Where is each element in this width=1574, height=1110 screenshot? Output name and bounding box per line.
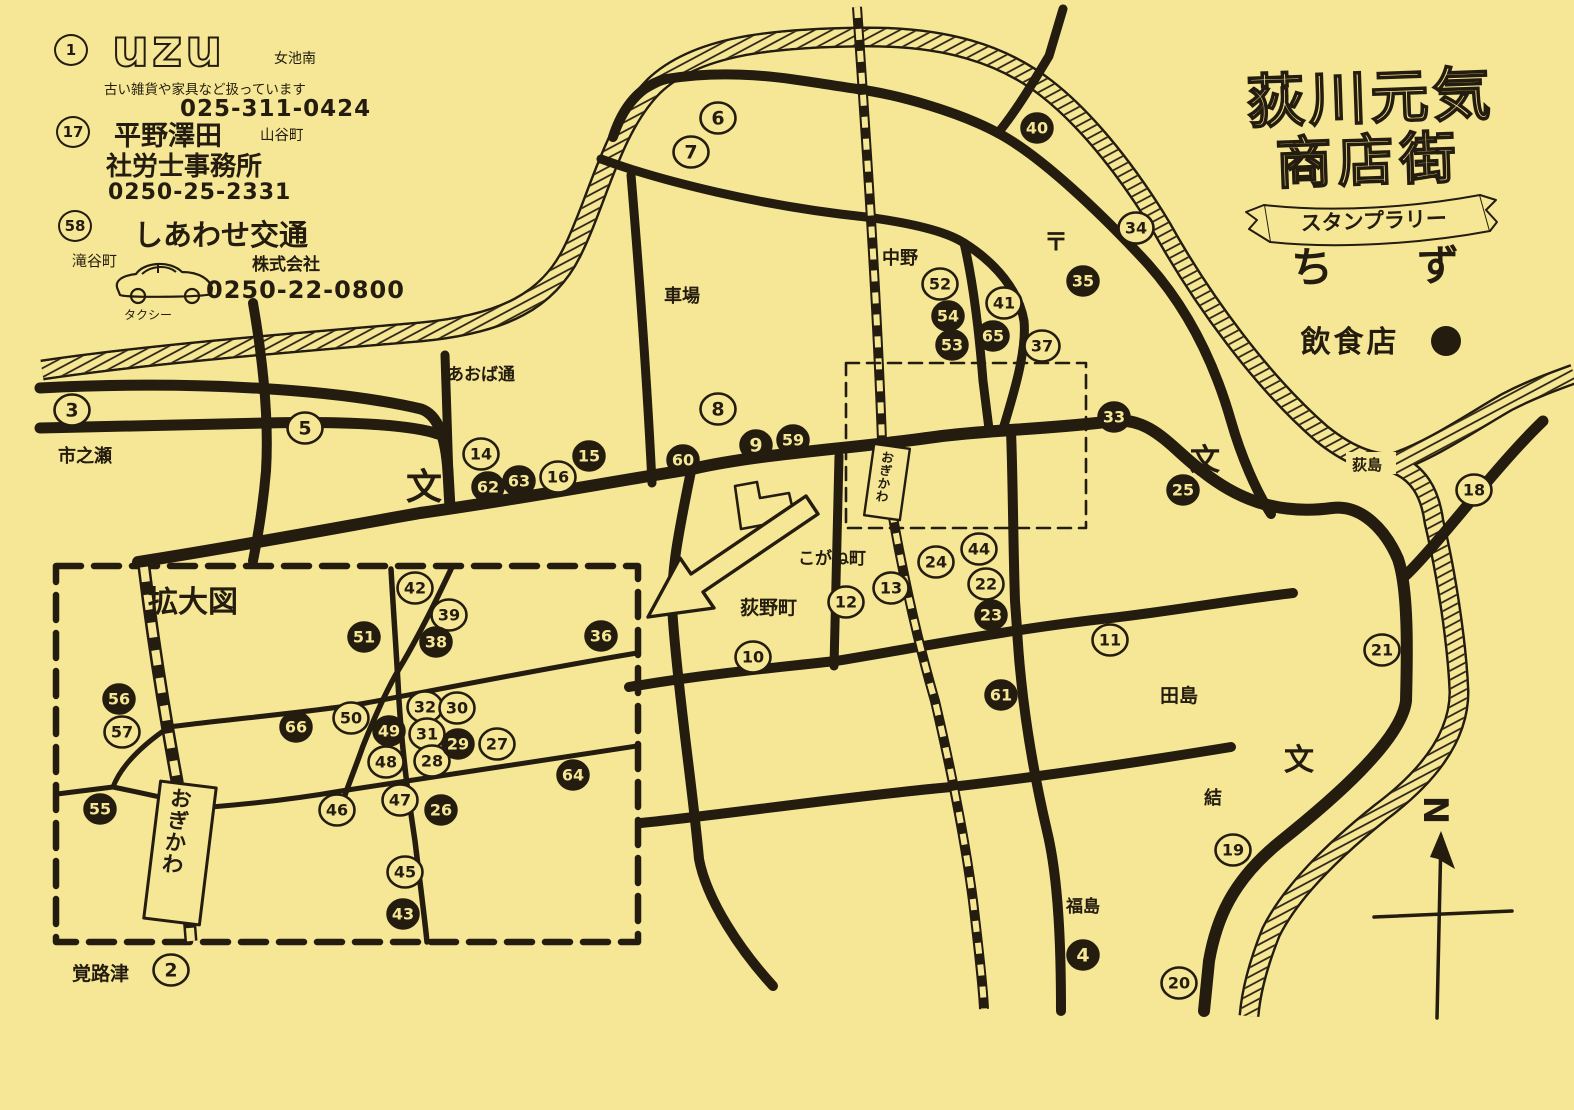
svg-text:39: 39 [438, 606, 460, 625]
ad-uzu-desc: 古い雑貨や家具など扱っています [104, 78, 306, 98]
ad-hirano-marker: 17 [56, 116, 90, 148]
ad-hirano-sawada: 17 平野澤田 山谷町 社労士事務所 0250-25-2331 [42, 110, 382, 210]
ad-taxi-phone: 0250-22-0800 [206, 276, 405, 304]
svg-text:30: 30 [446, 699, 468, 718]
svg-text:53: 53 [941, 336, 963, 355]
svg-text:20: 20 [1168, 974, 1190, 993]
svg-text:50: 50 [340, 709, 362, 728]
map-marker-46: 46 [320, 795, 355, 826]
svg-text:55: 55 [89, 800, 111, 819]
map-marker-27: 27 [480, 729, 515, 760]
map-marker-62: 62 [472, 472, 504, 502]
ribbon-label: スタンプラリー [1300, 206, 1447, 235]
map-marker-39: 39 [432, 600, 467, 631]
ad-hirano-area: 山谷町 [260, 124, 304, 145]
map-marker-33: 33 [1098, 402, 1130, 432]
svg-text:57: 57 [111, 723, 133, 742]
map-marker-50: 50 [334, 703, 369, 734]
svg-text:3: 3 [65, 400, 78, 422]
svg-text:44: 44 [968, 540, 990, 559]
svg-text:21: 21 [1371, 641, 1393, 660]
ad-taxi-company: 株式会社 [252, 250, 320, 275]
svg-text:7: 7 [684, 142, 697, 164]
svg-text:13: 13 [880, 579, 902, 598]
map-marker-14: 14 [464, 439, 499, 470]
svg-text:31: 31 [416, 725, 438, 744]
map-marker-2: 2 [154, 955, 189, 986]
map-marker-45: 45 [388, 857, 423, 888]
label-田島: 田島 [1160, 684, 1198, 707]
inset-border [56, 566, 638, 942]
svg-text:54: 54 [937, 307, 959, 326]
svg-text:6: 6 [711, 108, 724, 130]
map-marker-54: 54 [932, 301, 964, 331]
label-覚路津: 覚路津 [72, 962, 129, 985]
stamp-rally-map: N 荻川元気 商店街 スタンプラリー ち ず 飲食店 市之瀬あおば通車場中野〒こ… [0, 0, 1574, 1110]
svg-text:uzu: uzu [112, 20, 225, 76]
ad-taxi-vehicle: タクシー [124, 306, 172, 323]
map-marker-16: 16 [541, 462, 576, 493]
svg-text:61: 61 [990, 686, 1012, 705]
map-marker-7: 7 [674, 137, 709, 168]
ad-uzu-area: 女池南 [274, 48, 316, 68]
map-marker-65: 65 [977, 321, 1009, 351]
map-marker-4: 4 [1067, 940, 1099, 970]
svg-text:2: 2 [164, 960, 177, 982]
svg-text:63: 63 [508, 472, 530, 491]
map-marker-30: 30 [440, 693, 475, 724]
svg-text:51: 51 [353, 628, 375, 647]
map-marker-63: 63 [503, 466, 535, 496]
label-あおば通: あおば通 [447, 365, 515, 385]
ad-taxi-marker: 58 [58, 210, 92, 242]
label-文: 文 [1284, 743, 1314, 778]
label-拡大図: 拡大図 [148, 585, 238, 620]
map-marker-22: 22 [969, 569, 1004, 600]
ad-uzu: 1 uzu 女池南 古い雑貨や家具など扱っています 025-311-0424 [42, 24, 382, 114]
label-荻島: 荻島 [1352, 456, 1382, 474]
advertisements: 1 uzu 女池南 古い雑貨や家具など扱っています 025-311-0424 1… [0, 0, 420, 330]
map-marker-10: 10 [736, 642, 771, 673]
svg-text:62: 62 [477, 478, 499, 497]
label-中野: 中野 [882, 247, 918, 269]
label-文: 文 [1190, 443, 1220, 478]
svg-text:46: 46 [326, 801, 348, 820]
label-結: 結 [1204, 787, 1222, 809]
map-marker-61: 61 [985, 680, 1017, 710]
svg-text:25: 25 [1172, 481, 1194, 500]
compass-north: N [1374, 796, 1512, 1018]
svg-text:19: 19 [1222, 841, 1244, 860]
compass-n-label: N [1415, 796, 1455, 824]
svg-text:29: 29 [447, 735, 469, 754]
svg-text:24: 24 [925, 553, 947, 572]
map-marker-51: 51 [348, 622, 380, 652]
label-荻野町: 荻野町 [740, 596, 797, 619]
svg-text:26: 26 [430, 801, 452, 820]
inset-roads [57, 567, 637, 942]
svg-text:23: 23 [980, 606, 1002, 625]
ad-hirano-phone: 0250-25-2331 [108, 180, 291, 205]
svg-text:4: 4 [1076, 945, 1089, 967]
svg-text:47: 47 [389, 791, 411, 810]
map-marker-5: 5 [288, 413, 323, 444]
svg-text:36: 36 [590, 627, 612, 646]
map-marker-42: 42 [398, 573, 433, 604]
title-ribbon: スタンプラリー [1246, 195, 1497, 245]
svg-text:65: 65 [982, 327, 1004, 346]
map-marker-48: 48 [369, 747, 404, 778]
svg-text:64: 64 [562, 766, 584, 785]
map-title: 荻川元気 商店街 [1245, 60, 1497, 199]
svg-text:12: 12 [835, 593, 857, 612]
svg-text:8: 8 [711, 399, 724, 421]
map-marker-64: 64 [557, 760, 589, 790]
svg-text:14: 14 [470, 445, 492, 464]
title-chi: ち [1291, 243, 1333, 292]
svg-text:56: 56 [108, 690, 130, 709]
svg-text:38: 38 [425, 633, 447, 652]
svg-text:52: 52 [929, 275, 951, 294]
svg-text:42: 42 [404, 579, 426, 598]
map-marker-12: 12 [829, 587, 864, 618]
map-marker-43: 43 [387, 899, 419, 929]
map-marker-38: 38 [420, 627, 452, 657]
map-marker-52: 52 [923, 269, 958, 300]
svg-text:16: 16 [547, 468, 569, 487]
map-marker-3: 3 [55, 395, 90, 426]
map-marker-11: 11 [1093, 625, 1128, 656]
title-line1: 荻川元気 [1245, 60, 1495, 137]
map-marker-37: 37 [1025, 331, 1060, 362]
svg-text:18: 18 [1463, 481, 1485, 500]
ad-taxi-name: しあわせ交通 [134, 212, 308, 254]
map-marker-60: 60 [667, 445, 699, 475]
svg-text:40: 40 [1026, 119, 1048, 138]
map-marker-34: 34 [1119, 213, 1154, 244]
title-line2: 商店街 [1275, 126, 1463, 197]
legend-restaurant: 飲食店 [1301, 325, 1462, 360]
inset-enlarged-map [56, 566, 638, 942]
map-marker-9: 9 [740, 430, 772, 460]
svg-text:49: 49 [378, 722, 400, 741]
svg-text:34: 34 [1125, 219, 1147, 238]
map-marker-35: 35 [1067, 266, 1099, 296]
map-marker-25: 25 [1167, 475, 1199, 505]
map-marker-56: 56 [103, 684, 135, 714]
map-marker-6: 6 [701, 103, 736, 134]
map-marker-24: 24 [919, 547, 954, 578]
map-marker-19: 19 [1216, 835, 1251, 866]
restaurant-dot-icon [1431, 326, 1461, 356]
label-〒: 〒 [1044, 228, 1068, 256]
svg-text:9: 9 [749, 435, 762, 457]
map-marker-44: 44 [962, 534, 997, 565]
svg-text:48: 48 [375, 753, 397, 772]
map-marker-66: 66 [280, 712, 312, 742]
map-marker-40: 40 [1021, 113, 1053, 143]
map-marker-49: 49 [373, 716, 405, 746]
map-marker-20: 20 [1162, 968, 1197, 999]
svg-text:32: 32 [414, 698, 436, 717]
map-marker-41: 41 [987, 288, 1022, 319]
svg-text:35: 35 [1072, 272, 1094, 291]
svg-text:60: 60 [672, 451, 694, 470]
svg-text:43: 43 [392, 905, 414, 924]
uzu-logo: uzu [108, 20, 268, 76]
map-marker-36: 36 [585, 621, 617, 651]
map-marker-53: 53 [936, 330, 968, 360]
svg-text:33: 33 [1103, 408, 1125, 427]
label-車場: 車場 [664, 285, 700, 307]
svg-text:5: 5 [298, 418, 311, 440]
svg-text:41: 41 [993, 294, 1015, 313]
svg-text:59: 59 [782, 431, 804, 450]
map-marker-57: 57 [105, 717, 140, 748]
label-市之瀬: 市之瀬 [58, 445, 112, 467]
svg-text:11: 11 [1099, 631, 1121, 650]
map-marker-59: 59 [777, 425, 809, 455]
ad-uzu-marker: 1 [54, 34, 88, 66]
svg-text:15: 15 [578, 447, 600, 466]
map-marker-15: 15 [573, 441, 605, 471]
label-文: 文 [406, 467, 442, 508]
svg-text:28: 28 [421, 752, 443, 771]
label-こがね町: こがね町 [798, 548, 866, 569]
svg-text:37: 37 [1031, 337, 1053, 356]
label-福島: 福島 [1065, 896, 1100, 917]
map-marker-47: 47 [383, 785, 418, 816]
map-marker-26: 26 [425, 795, 457, 825]
map-marker-8: 8 [701, 394, 736, 425]
ad-shiawase-kotsu: 58 しあわせ交通 滝谷町 株式会社 タクシー 0250-22-0800 [38, 206, 388, 326]
map-marker-18: 18 [1457, 475, 1492, 506]
svg-text:45: 45 [394, 863, 416, 882]
title-zu: ず [1417, 241, 1459, 290]
map-marker-23: 23 [975, 600, 1007, 630]
svg-text:66: 66 [285, 718, 307, 737]
svg-text:10: 10 [742, 648, 764, 667]
svg-text:27: 27 [486, 735, 508, 754]
map-marker-55: 55 [84, 794, 116, 824]
map-marker-21: 21 [1365, 635, 1400, 666]
svg-text:22: 22 [975, 575, 997, 594]
map-marker-13: 13 [874, 573, 909, 604]
legend-label: 飲食店 [1301, 325, 1400, 360]
map-marker-29: 29 [442, 729, 474, 759]
ad-hirano-name2: 社労士事務所 [106, 146, 262, 183]
